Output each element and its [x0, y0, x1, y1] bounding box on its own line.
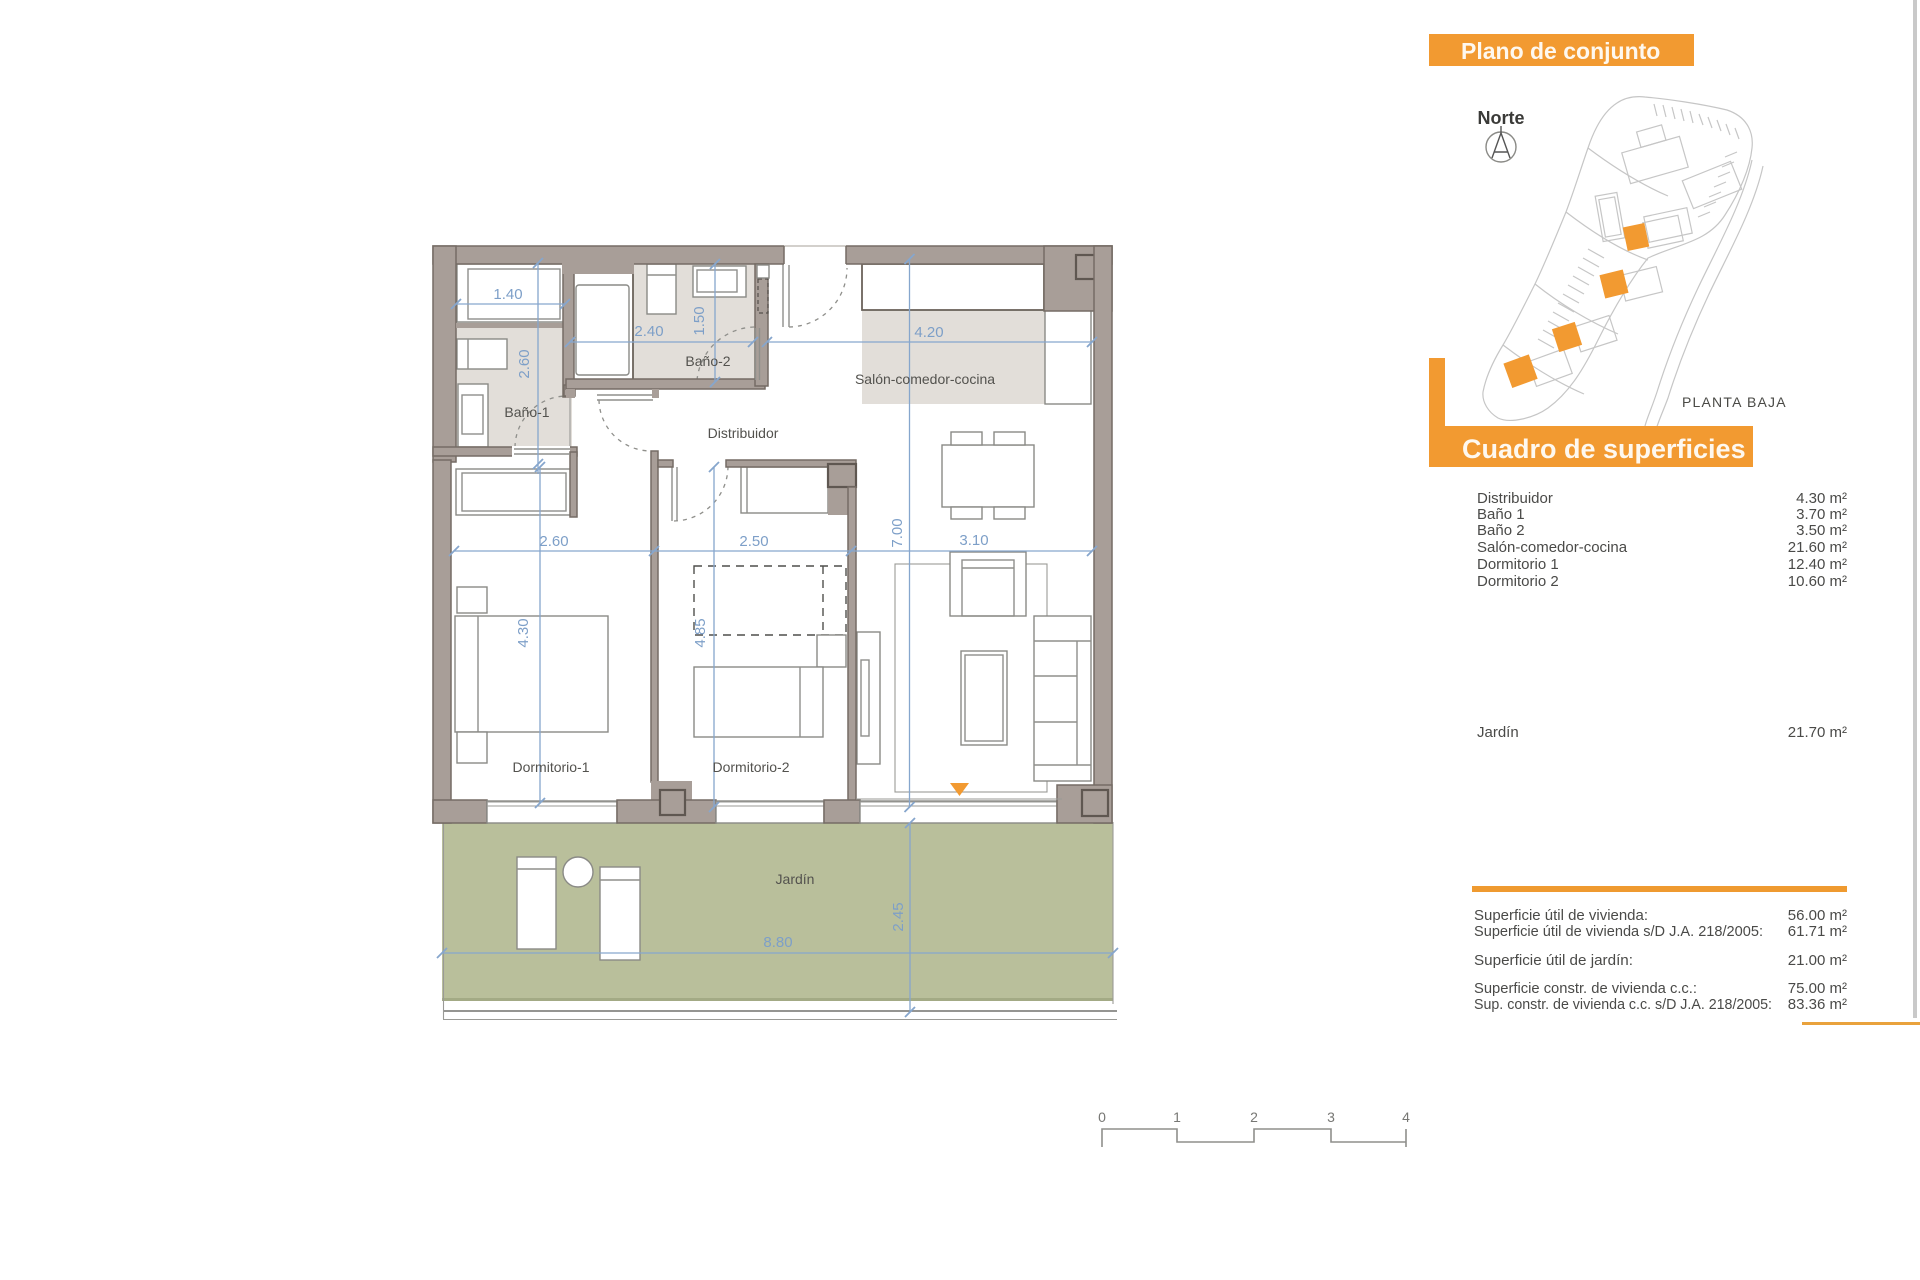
svg-text:Distribuidor: Distribuidor [708, 425, 779, 441]
svg-text:PLANTA BAJA: PLANTA BAJA [1682, 394, 1787, 410]
svg-text:Dormitorio-1: Dormitorio-1 [512, 759, 589, 775]
svg-text:4: 4 [1402, 1109, 1410, 1125]
svg-text:8.80: 8.80 [763, 934, 792, 951]
svg-text:Superficie útil de vivienda s/: Superficie útil de vivienda s/D J.A. 218… [1474, 923, 1763, 940]
svg-text:3: 3 [1327, 1109, 1335, 1125]
svg-text:Baño 1: Baño 1 [1477, 506, 1525, 523]
svg-text:Dormitorio 2: Dormitorio 2 [1477, 573, 1559, 590]
svg-text:1: 1 [1173, 1109, 1181, 1125]
svg-text:Plano de conjunto: Plano de conjunto [1461, 38, 1660, 64]
svg-text:Baño 2: Baño 2 [1477, 522, 1525, 539]
svg-text:Baño-2: Baño-2 [685, 353, 730, 369]
svg-text:3.70 m²: 3.70 m² [1796, 506, 1847, 523]
svg-text:10.60 m²: 10.60 m² [1788, 573, 1847, 590]
svg-text:4.30 m²: 4.30 m² [1796, 490, 1847, 507]
svg-text:Sup. constr. de vivienda c.c.: Sup. constr. de vivienda c.c. s/D J.A. 2… [1474, 996, 1772, 1013]
svg-text:Salón-comedor-cocina: Salón-comedor-cocina [1477, 539, 1628, 556]
svg-text:75.00 m²: 75.00 m² [1788, 980, 1847, 997]
svg-text:Salón-comedor-cocina: Salón-comedor-cocina [855, 371, 995, 387]
svg-text:Jardín: Jardín [1477, 724, 1519, 741]
svg-text:Superficie útil de jardín:: Superficie útil de jardín: [1474, 952, 1633, 969]
svg-text:2.60: 2.60 [539, 533, 568, 550]
svg-text:12.40 m²: 12.40 m² [1788, 556, 1847, 573]
svg-text:4.85: 4.85 [692, 618, 709, 647]
svg-text:61.71 m²: 61.71 m² [1788, 923, 1847, 940]
svg-text:21.00 m²: 21.00 m² [1788, 952, 1847, 969]
svg-text:83.36 m²: 83.36 m² [1788, 996, 1847, 1013]
svg-text:Superficie útil de vivienda:: Superficie útil de vivienda: [1474, 907, 1648, 924]
svg-text:3.10: 3.10 [959, 532, 988, 549]
svg-text:4.20: 4.20 [914, 324, 943, 341]
svg-text:4.30: 4.30 [515, 618, 532, 647]
svg-text:Superficie constr. de vivienda: Superficie constr. de vivienda c.c.: [1474, 980, 1697, 997]
svg-text:Dormitorio-2: Dormitorio-2 [712, 759, 789, 775]
svg-text:2: 2 [1250, 1109, 1258, 1125]
svg-text:1.50: 1.50 [691, 306, 708, 335]
svg-text:Baño-1: Baño-1 [504, 404, 549, 420]
svg-text:2.40: 2.40 [634, 323, 663, 340]
svg-text:Jardín: Jardín [776, 871, 815, 887]
svg-text:56.00 m²: 56.00 m² [1788, 907, 1847, 924]
svg-text:Dormitorio 1: Dormitorio 1 [1477, 556, 1559, 573]
svg-text:7.00: 7.00 [889, 518, 906, 547]
svg-text:3.50 m²: 3.50 m² [1796, 522, 1847, 539]
svg-text:0: 0 [1098, 1109, 1106, 1125]
svg-text:1.40: 1.40 [493, 286, 522, 303]
svg-text:2.50: 2.50 [739, 533, 768, 550]
svg-text:2.60: 2.60 [516, 349, 533, 378]
svg-text:21.60 m²: 21.60 m² [1788, 539, 1847, 556]
svg-text:Cuadro de superficies: Cuadro de superficies [1462, 434, 1746, 464]
svg-text:21.70 m²: 21.70 m² [1788, 724, 1847, 741]
svg-text:Norte: Norte [1477, 108, 1524, 128]
svg-text:Distribuidor: Distribuidor [1477, 490, 1553, 507]
svg-text:2.45: 2.45 [890, 902, 907, 931]
